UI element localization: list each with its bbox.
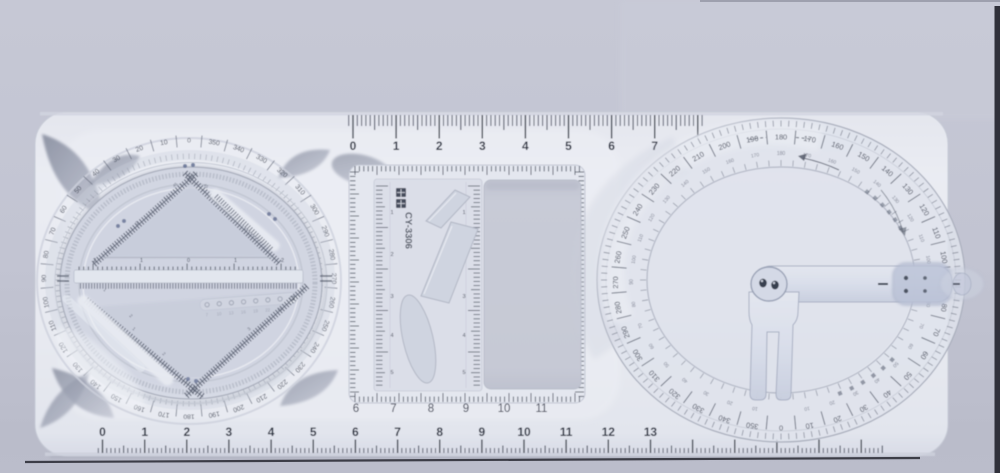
svg-text:5: 5	[310, 425, 317, 439]
svg-text:2: 2	[436, 139, 443, 153]
svg-text:0: 0	[350, 139, 357, 153]
svg-text:180: 180	[775, 133, 787, 142]
svg-text:9: 9	[463, 403, 469, 415]
svg-text:0: 0	[187, 258, 190, 264]
svg-text:5: 5	[390, 370, 393, 376]
svg-text:0: 0	[187, 138, 191, 145]
svg-text:4: 4	[268, 425, 275, 439]
svg-text:6: 6	[608, 139, 615, 153]
svg-text:1: 1	[390, 210, 393, 216]
svg-text:1: 1	[393, 139, 400, 153]
svg-text:4: 4	[462, 333, 465, 339]
svg-text:9: 9	[478, 425, 485, 439]
svg-text:1: 1	[462, 210, 465, 216]
svg-text:180: 180	[777, 151, 786, 157]
svg-text:11: 11	[560, 425, 573, 439]
svg-text:180: 180	[183, 413, 195, 420]
svg-text:5: 5	[565, 139, 572, 153]
svg-text:1: 1	[140, 258, 143, 264]
svg-text:10: 10	[805, 421, 815, 431]
svg-text:3: 3	[226, 425, 233, 439]
svg-text:7: 7	[390, 403, 396, 415]
svg-text:10: 10	[160, 139, 169, 147]
svg-text:11: 11	[536, 403, 548, 415]
svg-text:90: 90	[629, 279, 635, 285]
svg-text:6: 6	[353, 403, 359, 415]
svg-text:2: 2	[93, 258, 96, 264]
svg-text:2: 2	[390, 252, 393, 258]
svg-text:1: 1	[141, 425, 148, 439]
svg-text:3: 3	[462, 294, 465, 300]
svg-text:CY-3306: CY-3306	[403, 212, 414, 249]
svg-text:13: 13	[644, 425, 658, 439]
svg-text:3: 3	[390, 294, 393, 300]
svg-text:8: 8	[436, 425, 443, 439]
svg-text:6: 6	[352, 425, 359, 439]
svg-text:7: 7	[394, 425, 401, 439]
svg-text:1: 1	[234, 258, 237, 264]
svg-text:3: 3	[479, 139, 486, 153]
svg-text:0: 0	[779, 424, 783, 433]
svg-text:2: 2	[183, 425, 190, 439]
svg-text:10: 10	[498, 403, 511, 415]
svg-text:270: 270	[611, 276, 620, 288]
svg-text:5: 5	[462, 370, 465, 376]
svg-text:12: 12	[602, 425, 616, 439]
svg-text:8: 8	[428, 403, 434, 415]
svg-text:2: 2	[281, 258, 284, 264]
svg-text:0: 0	[99, 425, 106, 439]
svg-text:10: 10	[517, 425, 531, 439]
svg-text:4: 4	[522, 139, 529, 153]
svg-text:4: 4	[390, 333, 393, 339]
